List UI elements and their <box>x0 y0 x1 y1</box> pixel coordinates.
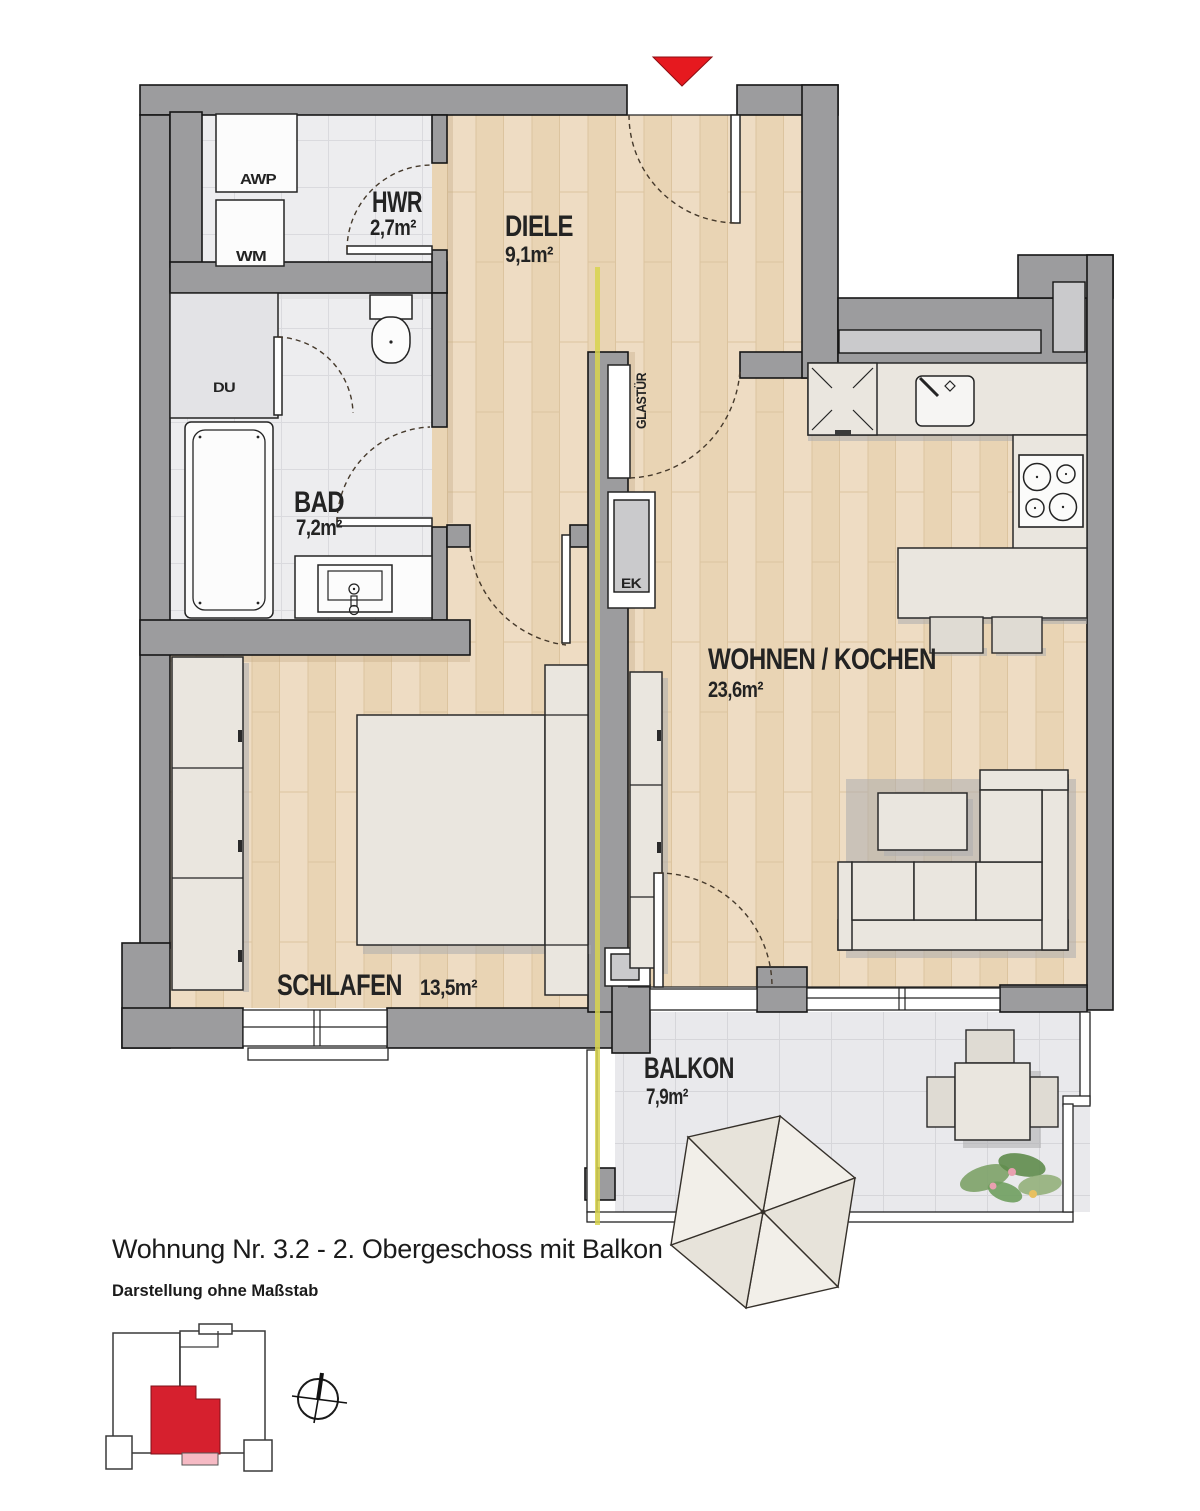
entrance-marker <box>653 57 712 86</box>
title-block: Wohnung Nr. 3.2 - 2. Obergeschoss mit Ba… <box>112 1234 663 1301</box>
awp-label: AWP <box>240 171 277 188</box>
toilet <box>370 295 412 363</box>
room-label-balkon: BALKON <box>644 1052 734 1085</box>
compass-icon <box>292 1373 347 1423</box>
room-label-diele: DIELE <box>505 210 573 243</box>
minimap <box>106 1324 272 1471</box>
ek-cabinet: EK <box>608 492 655 608</box>
coffee-table <box>878 793 973 856</box>
room-area-bad: 7,2m² <box>296 515 342 540</box>
floorplan-page: AWP WM DU <box>0 0 1200 1511</box>
wardrobe <box>172 657 249 992</box>
page-title: Wohnung Nr. 3.2 - 2. Obergeschoss mit Ba… <box>112 1234 663 1265</box>
room-area-schlafen: 13,5m² <box>420 975 477 1000</box>
wm-label: WM <box>236 248 266 265</box>
room-area-balkon: 7,9m² <box>646 1084 688 1109</box>
living-window <box>807 988 1000 1010</box>
minimap-balcony-highlight <box>182 1453 218 1465</box>
room-area-hwr: 2,7m² <box>370 215 416 240</box>
room-label-wohnen: WOHNEN / KOCHEN <box>708 643 936 676</box>
bedroom-window <box>243 1010 388 1060</box>
kitchen-sink <box>916 376 974 426</box>
room-label-schlafen: SCHLAFEN <box>277 969 402 1002</box>
glastuer-label: GLASTÜR <box>634 372 649 429</box>
kitchen-island <box>898 548 1087 618</box>
bathtub <box>185 422 273 618</box>
bed <box>357 665 591 995</box>
dishwasher <box>808 363 877 435</box>
stove <box>1019 455 1083 527</box>
shower: DU <box>170 293 278 418</box>
section-line <box>595 267 600 1225</box>
balcony-door-threshold <box>650 989 757 1010</box>
room-area-wohnen: 23,6m² <box>708 677 763 702</box>
page-subtitle: Darstellung ohne Maßstab <box>112 1282 663 1301</box>
ek-label: EK <box>621 575 642 591</box>
du-label: DU <box>213 379 236 395</box>
washbasin <box>295 556 432 618</box>
room-area-diele: 9,1m² <box>505 242 553 267</box>
